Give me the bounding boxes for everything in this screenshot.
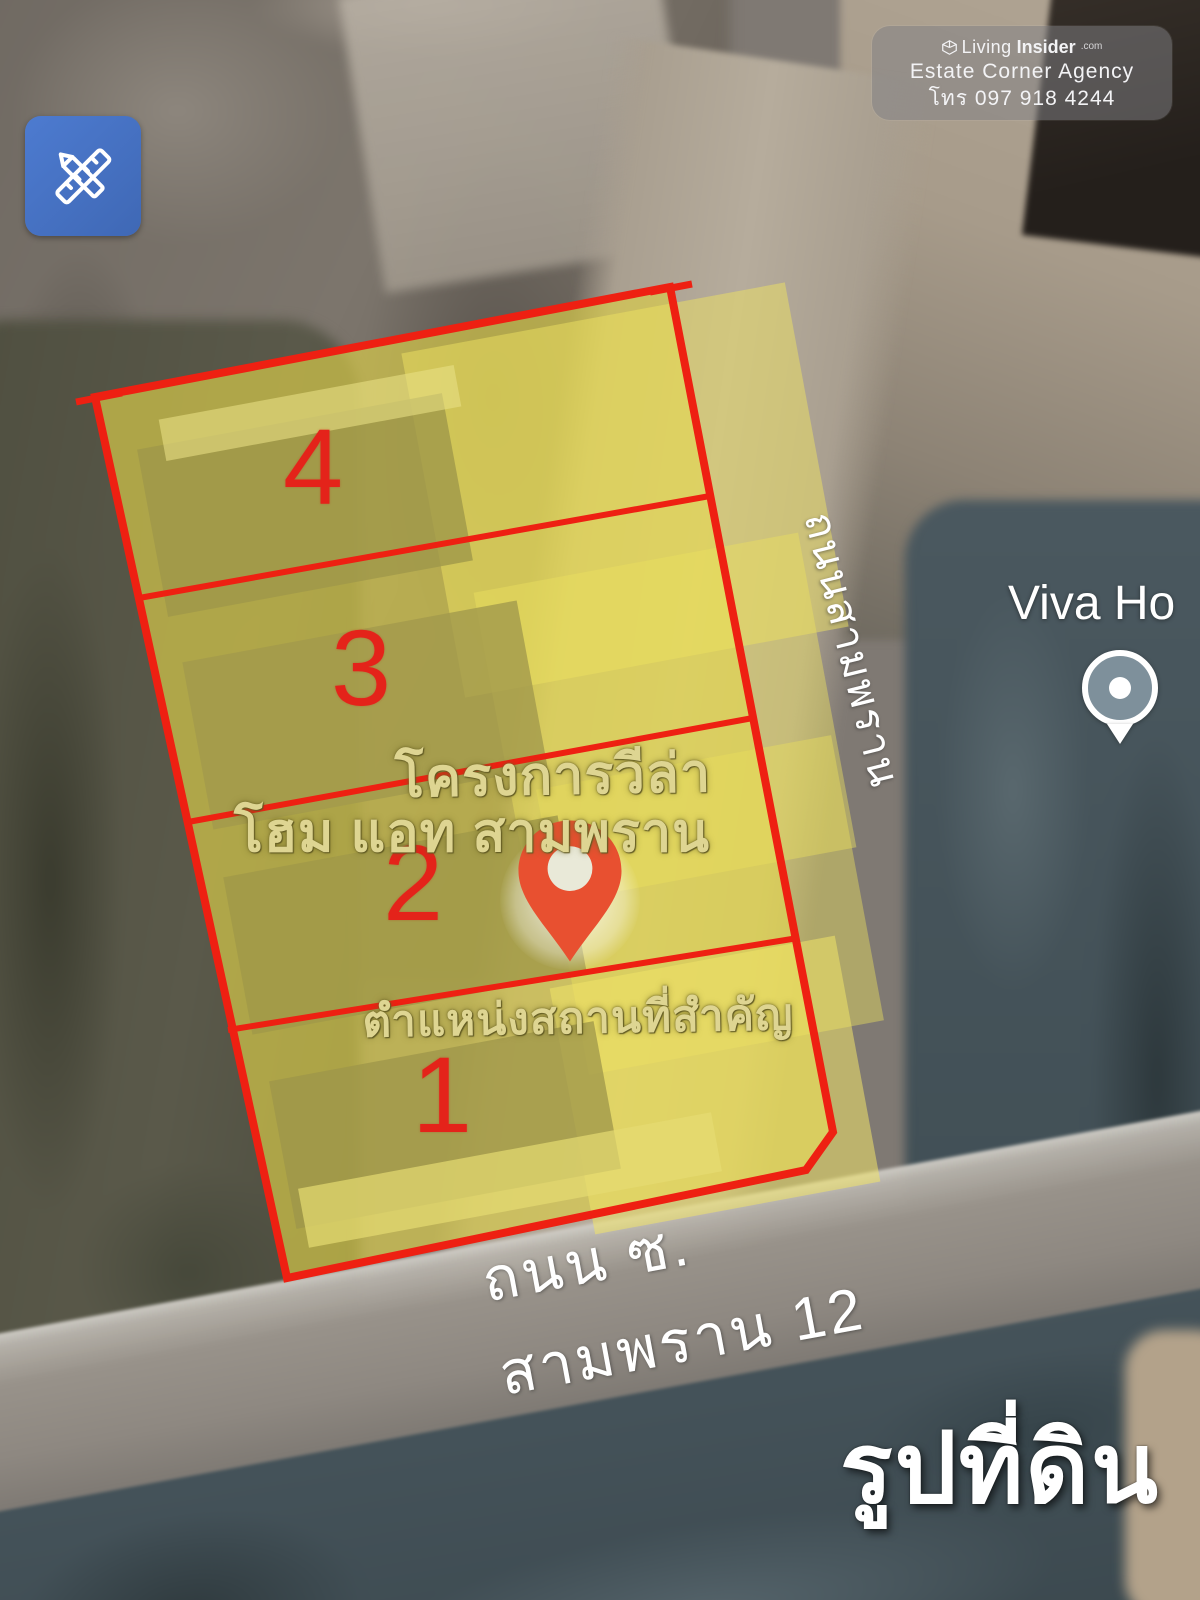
poi-pin-dot bbox=[1109, 677, 1131, 699]
boundary-tick-topright bbox=[650, 284, 692, 292]
marker-caption: ตำแหน่งสถานที่สำคัญ bbox=[362, 979, 794, 1057]
plot-number-1: 1 bbox=[412, 1041, 472, 1149]
plot-number-3: 3 bbox=[331, 614, 391, 722]
project-name-line2: โฮม แอท สามพราน bbox=[234, 789, 710, 875]
image-caption: รูปที่ดิน bbox=[840, 1390, 1160, 1546]
watermark-agency: Estate Corner Agency bbox=[872, 58, 1172, 85]
livinginsider-logo-icon bbox=[942, 40, 957, 55]
satellite-land-plot-image: 4 3 2 1 โครงการวีล่า โฮม แอท สามพราน ตำแ… bbox=[0, 0, 1200, 1600]
poi-pin-tip bbox=[1107, 724, 1133, 744]
poi-label-viva: Viva Ho bbox=[1008, 576, 1175, 631]
watermark-brand-line: LivingInsider.com bbox=[872, 36, 1172, 58]
watermark-card: LivingInsider.com Estate Corner Agency โ… bbox=[872, 26, 1172, 120]
viva-poi-pin-icon[interactable] bbox=[1082, 650, 1162, 760]
watermark-phone: โทร 097 918 4244 bbox=[872, 85, 1172, 112]
watermark-brand-tld: .com bbox=[1081, 36, 1103, 58]
watermark-brand-prefix: Living bbox=[962, 36, 1012, 58]
plot-number-4: 4 bbox=[283, 413, 343, 521]
measure-icon bbox=[48, 141, 118, 211]
measure-button[interactable] bbox=[25, 116, 141, 236]
watermark-brand-bold: Insider bbox=[1017, 36, 1076, 58]
